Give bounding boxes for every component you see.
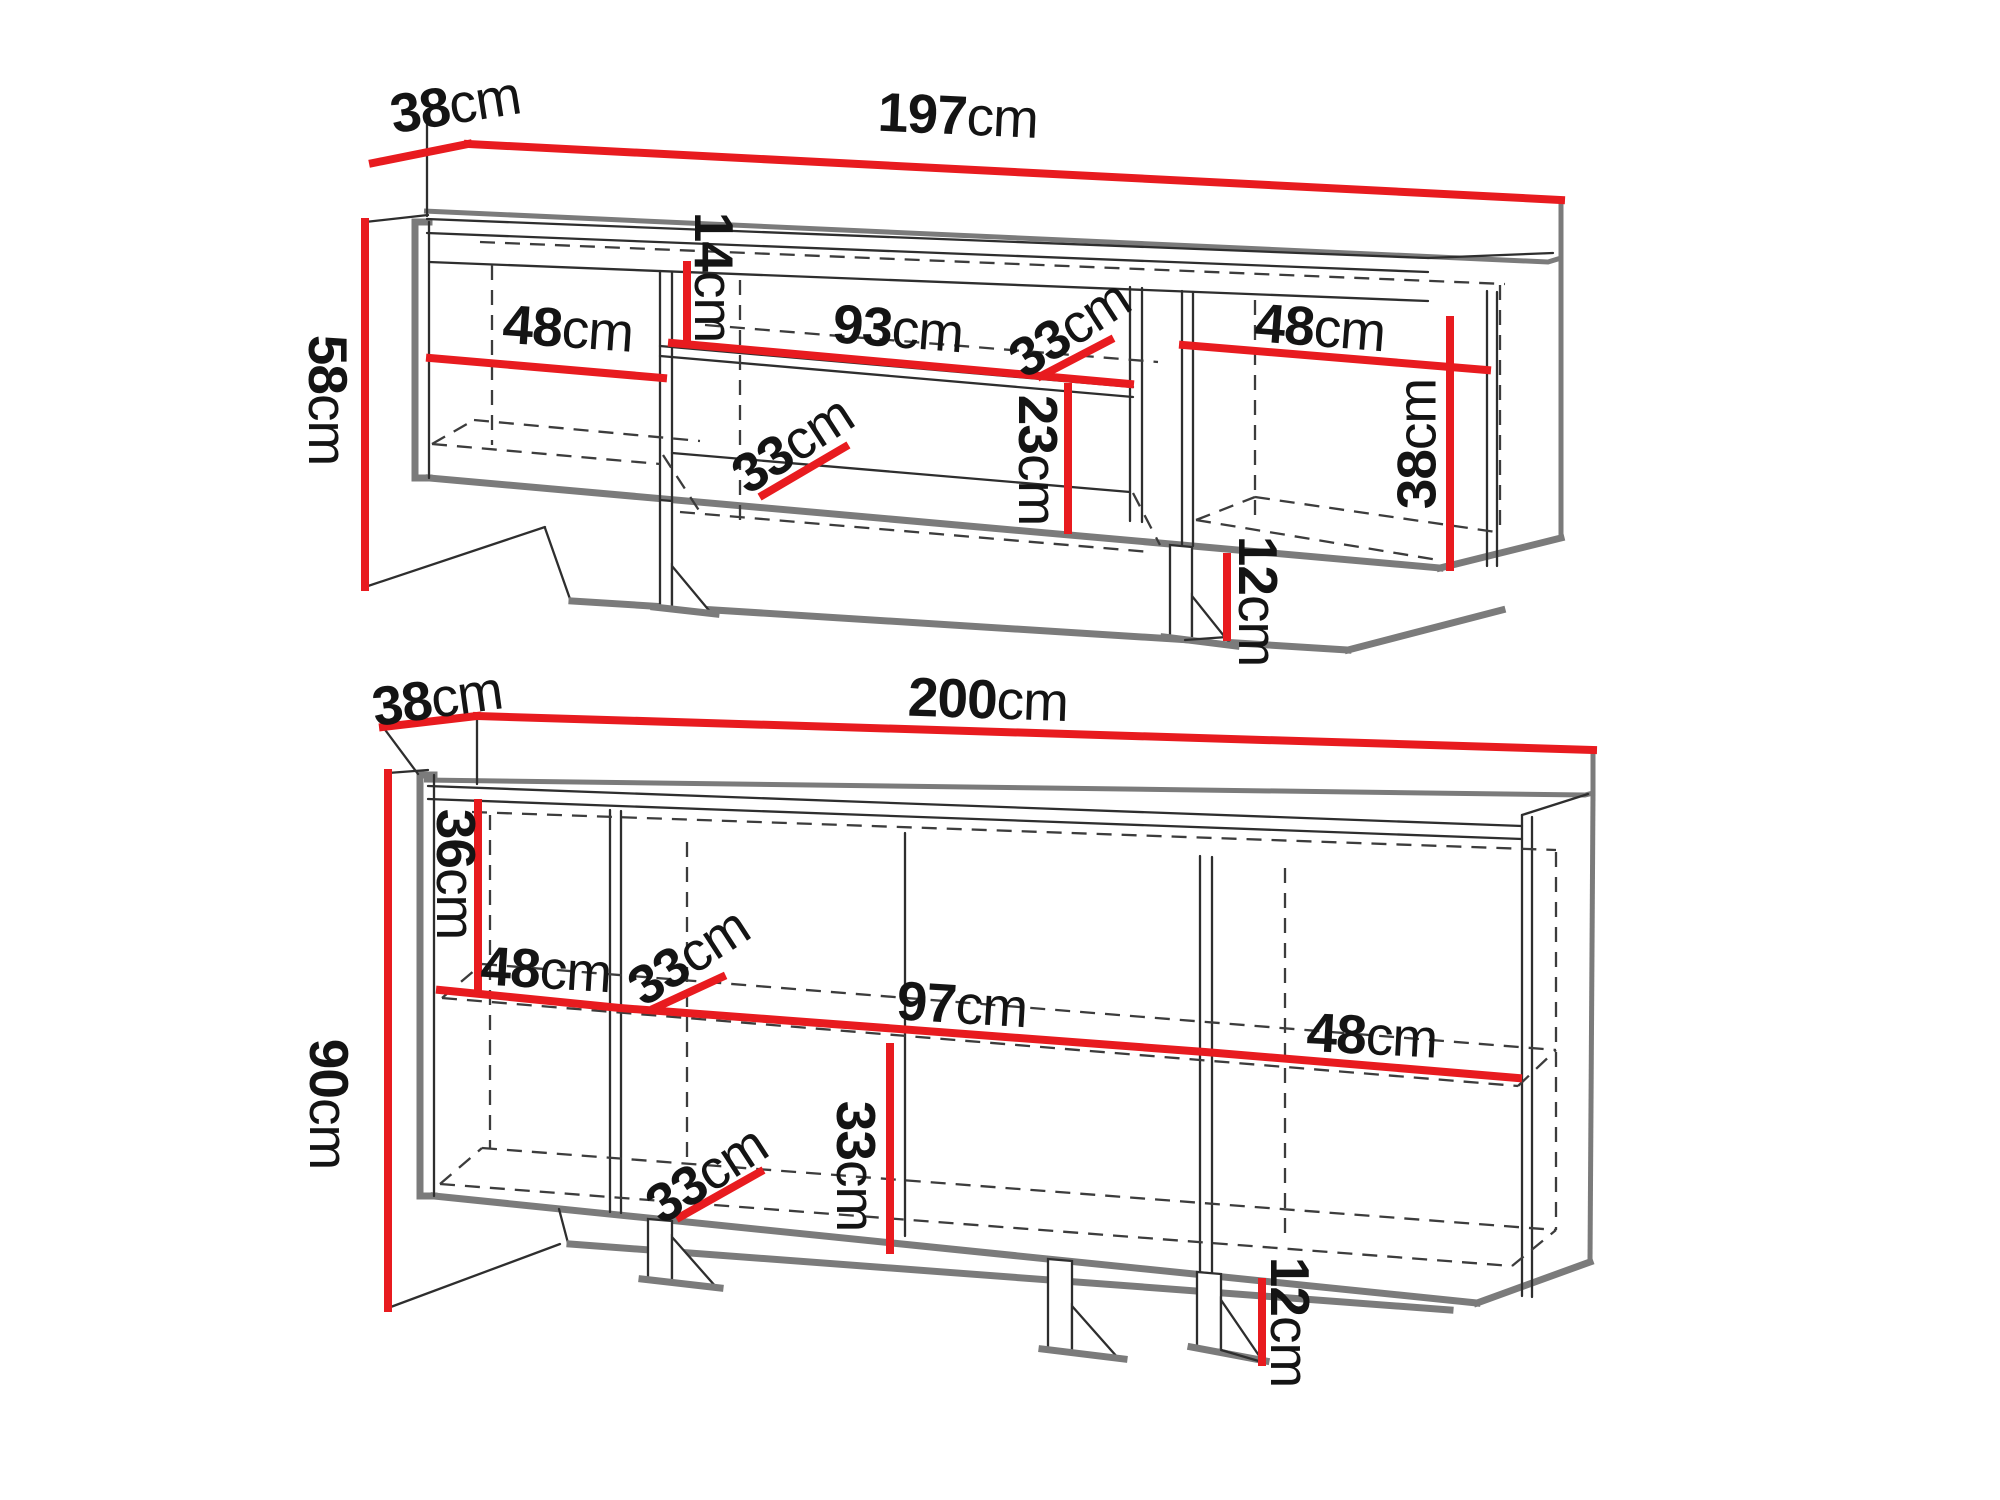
dim-unit: cm: [825, 1160, 887, 1231]
dim-unit: cm: [427, 658, 506, 729]
dim-value: 48: [501, 293, 564, 359]
dim-unit: cm: [889, 297, 965, 364]
dim-unit: cm: [444, 63, 524, 135]
sb-right-door-label: 48cm: [1305, 1001, 1439, 1070]
dim-unit: cm: [1311, 296, 1387, 363]
dim-unit: cm: [1007, 454, 1069, 525]
tv-drawer-height-label: 23cm: [1007, 395, 1069, 526]
dim-unit: cm: [996, 669, 1069, 733]
dim-unit: cm: [298, 1098, 360, 1169]
tv-niche-height-label: 14cm: [683, 212, 745, 343]
dim-value: 14: [683, 212, 745, 273]
dim-unit: cm: [683, 271, 745, 342]
furniture-dimension-sheet: 38cm 197cm 58cm 48cm 14cm 93cm 33cm 23cm…: [0, 0, 2000, 1500]
tv-bottom-shelf-depth-label: 33cm: [721, 383, 864, 506]
tv-stand-hidden-lines: [432, 242, 1505, 560]
sb-top-inner-height-label: 36cm: [425, 809, 487, 940]
sideboard-drawing: 38cm 200cm 90cm 36cm 48cm 33cm 97cm 48cm…: [298, 658, 1593, 1387]
sb-bottom-shelf-depth-label: 33cm: [635, 1113, 778, 1236]
dim-value: 12: [1259, 1257, 1321, 1316]
dim-value: 90: [298, 1039, 360, 1098]
dim-value: 12: [1227, 536, 1289, 595]
dim-value: 48: [479, 934, 542, 999]
sb-depth-label: 38cm: [368, 658, 506, 738]
tv-height-label: 58cm: [297, 335, 359, 466]
diagram-canvas: 38cm 197cm 58cm 48cm 14cm 93cm 33cm 23cm…: [0, 0, 2000, 1500]
sideboard-right-foot: [1197, 1272, 1221, 1350]
dim-unit: cm: [425, 868, 487, 939]
dim-unit: cm: [560, 297, 635, 364]
dim-unit: cm: [1227, 595, 1289, 666]
tv-foot-height-label: 12cm: [1227, 536, 1289, 667]
sb-foot-height-label: 12cm: [1259, 1257, 1321, 1388]
dim-value: 48: [1252, 291, 1316, 357]
dim-value: 48: [1305, 1001, 1367, 1066]
sb-middle-section-label: 97cm: [895, 969, 1029, 1039]
tv-width-label: 197cm: [877, 81, 1040, 150]
tv-depth-label: 38cm: [386, 63, 525, 145]
dim-unit: cm: [538, 938, 613, 1004]
tv-depth-line: [373, 144, 468, 163]
tv-niche-width-label: 93cm: [830, 292, 965, 364]
sb-lower-inner-height-label: 33cm: [825, 1101, 887, 1232]
dim-unit: cm: [1364, 1004, 1438, 1070]
dim-unit: cm: [297, 394, 359, 465]
dim-value: 38: [386, 75, 454, 145]
dim-value: 33: [825, 1101, 887, 1160]
dim-value: 38: [368, 668, 435, 738]
tv-width-line: [468, 144, 1561, 200]
dim-unit: cm: [954, 973, 1029, 1039]
dim-value: 36: [425, 809, 487, 868]
dim-unit: cm: [1259, 1316, 1321, 1387]
tv-right-inner-height-label: 38cm: [1385, 379, 1447, 510]
dim-value: 58: [297, 335, 359, 394]
sb-height-label: 90cm: [298, 1039, 360, 1170]
dim-unit: cm: [1385, 379, 1447, 450]
dim-unit: cm: [965, 85, 1039, 150]
dim-value: 97: [895, 969, 958, 1034]
dim-value: 200: [907, 665, 998, 730]
dim-value: 93: [830, 292, 894, 358]
tv-stand-left-foot: [660, 500, 672, 608]
tv-stand-drawing: 38cm 197cm 58cm 48cm 14cm 93cm 33cm 23cm…: [297, 63, 1561, 666]
dim-value: 197: [877, 81, 968, 147]
sb-left-door-label: 48cm: [479, 934, 613, 1004]
sideboard-middle-foot: [1048, 1259, 1072, 1352]
dim-value: 38: [1385, 450, 1447, 509]
sb-width-label: 200cm: [907, 665, 1069, 733]
dim-value: 23: [1007, 395, 1069, 454]
tv-stand-right-foot: [1170, 545, 1192, 640]
tv-right-door-label: 48cm: [1252, 291, 1387, 363]
tv-left-door-label: 48cm: [501, 293, 636, 364]
